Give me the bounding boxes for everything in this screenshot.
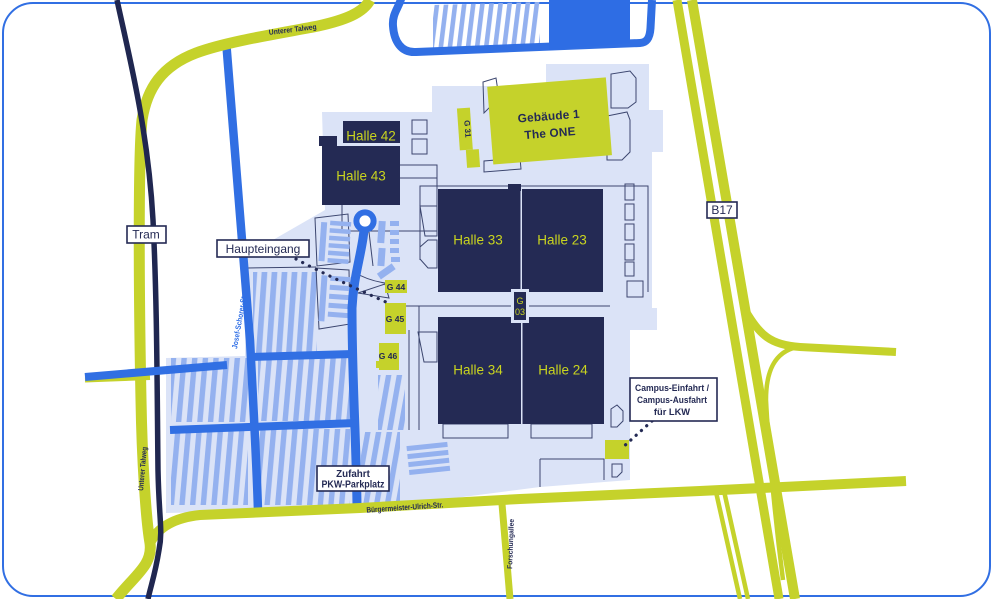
- svg-text:Halle 24: Halle 24: [538, 363, 588, 378]
- svg-text:G 44: G 44: [387, 282, 406, 292]
- svg-text:Haupteingang: Haupteingang: [226, 242, 301, 256]
- svg-text:PKW-Parkplatz: PKW-Parkplatz: [322, 480, 385, 491]
- svg-text:Halle 43: Halle 43: [336, 169, 386, 184]
- svg-text:Campus-Einfahrt /: Campus-Einfahrt /: [635, 383, 709, 393]
- svg-text:Halle 23: Halle 23: [537, 233, 587, 248]
- svg-text:B17: B17: [711, 203, 733, 217]
- svg-text:Campus-Ausfahrt: Campus-Ausfahrt: [637, 395, 707, 405]
- svg-text:Halle 33: Halle 33: [453, 233, 503, 248]
- svg-text:G: G: [516, 296, 523, 306]
- svg-text:Tram: Tram: [132, 228, 160, 242]
- svg-text:für LKW: für LKW: [654, 407, 690, 417]
- svg-text:Forschungallee: Forschungallee: [505, 519, 516, 569]
- svg-text:Halle 42: Halle 42: [346, 129, 396, 144]
- svg-text:Halle 34: Halle 34: [453, 363, 503, 378]
- svg-text:G 31: G 31: [462, 120, 472, 138]
- svg-text:03: 03: [515, 307, 525, 317]
- svg-text:G 45: G 45: [386, 314, 405, 324]
- svg-text:G 46: G 46: [379, 351, 398, 361]
- svg-text:Zufahrt: Zufahrt: [336, 469, 370, 480]
